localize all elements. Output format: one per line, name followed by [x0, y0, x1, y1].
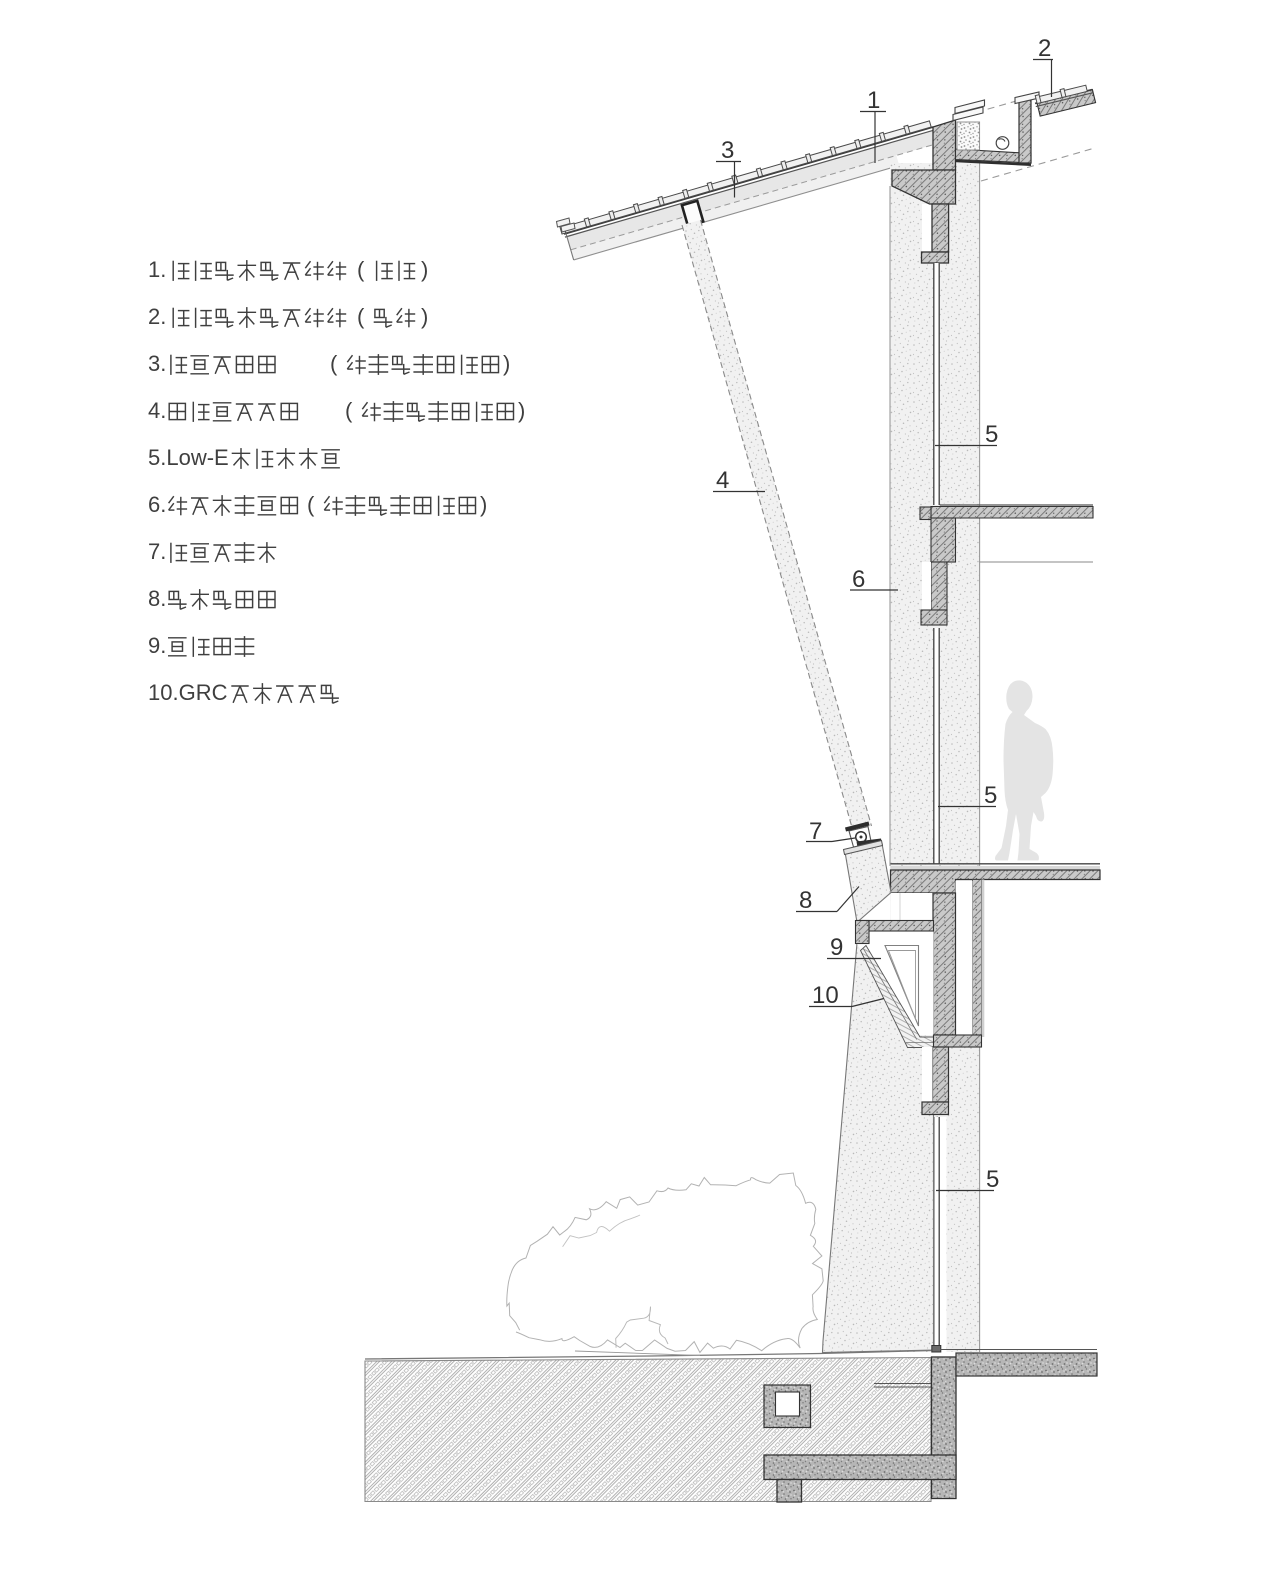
svg-text:9.: 9. — [148, 633, 166, 658]
svg-text:5: 5 — [985, 421, 998, 448]
svg-text:1: 1 — [867, 87, 880, 114]
svg-text:(: ( — [330, 351, 338, 376]
svg-text:): ) — [503, 351, 510, 376]
svg-text:5: 5 — [984, 782, 997, 809]
svg-text:(: ( — [345, 398, 353, 423]
svg-text:2: 2 — [1038, 35, 1051, 62]
svg-text:2.: 2. — [148, 304, 166, 329]
svg-text:6: 6 — [852, 566, 865, 593]
svg-text:): ) — [421, 257, 428, 282]
svg-text:3: 3 — [721, 137, 734, 164]
svg-text:10: 10 — [812, 982, 839, 1009]
svg-text:5.Low-E: 5.Low-E — [148, 445, 229, 470]
svg-text:8: 8 — [799, 887, 812, 914]
svg-text:9: 9 — [830, 934, 843, 961]
svg-text:(: ( — [357, 304, 365, 329]
svg-text:3.: 3. — [148, 351, 166, 376]
svg-text:(: ( — [307, 492, 315, 517]
svg-text:7.: 7. — [148, 539, 166, 564]
svg-text:1.: 1. — [148, 257, 166, 282]
svg-text:(: ( — [357, 257, 365, 282]
svg-text:10.GRC: 10.GRC — [148, 680, 228, 705]
svg-text:): ) — [421, 304, 428, 329]
svg-text:4.: 4. — [148, 398, 166, 423]
svg-text:): ) — [518, 398, 525, 423]
svg-text:6.: 6. — [148, 492, 166, 517]
svg-text:8.: 8. — [148, 586, 166, 611]
svg-text:4: 4 — [716, 467, 729, 494]
svg-text:): ) — [480, 492, 487, 517]
svg-text:5: 5 — [986, 1166, 999, 1193]
